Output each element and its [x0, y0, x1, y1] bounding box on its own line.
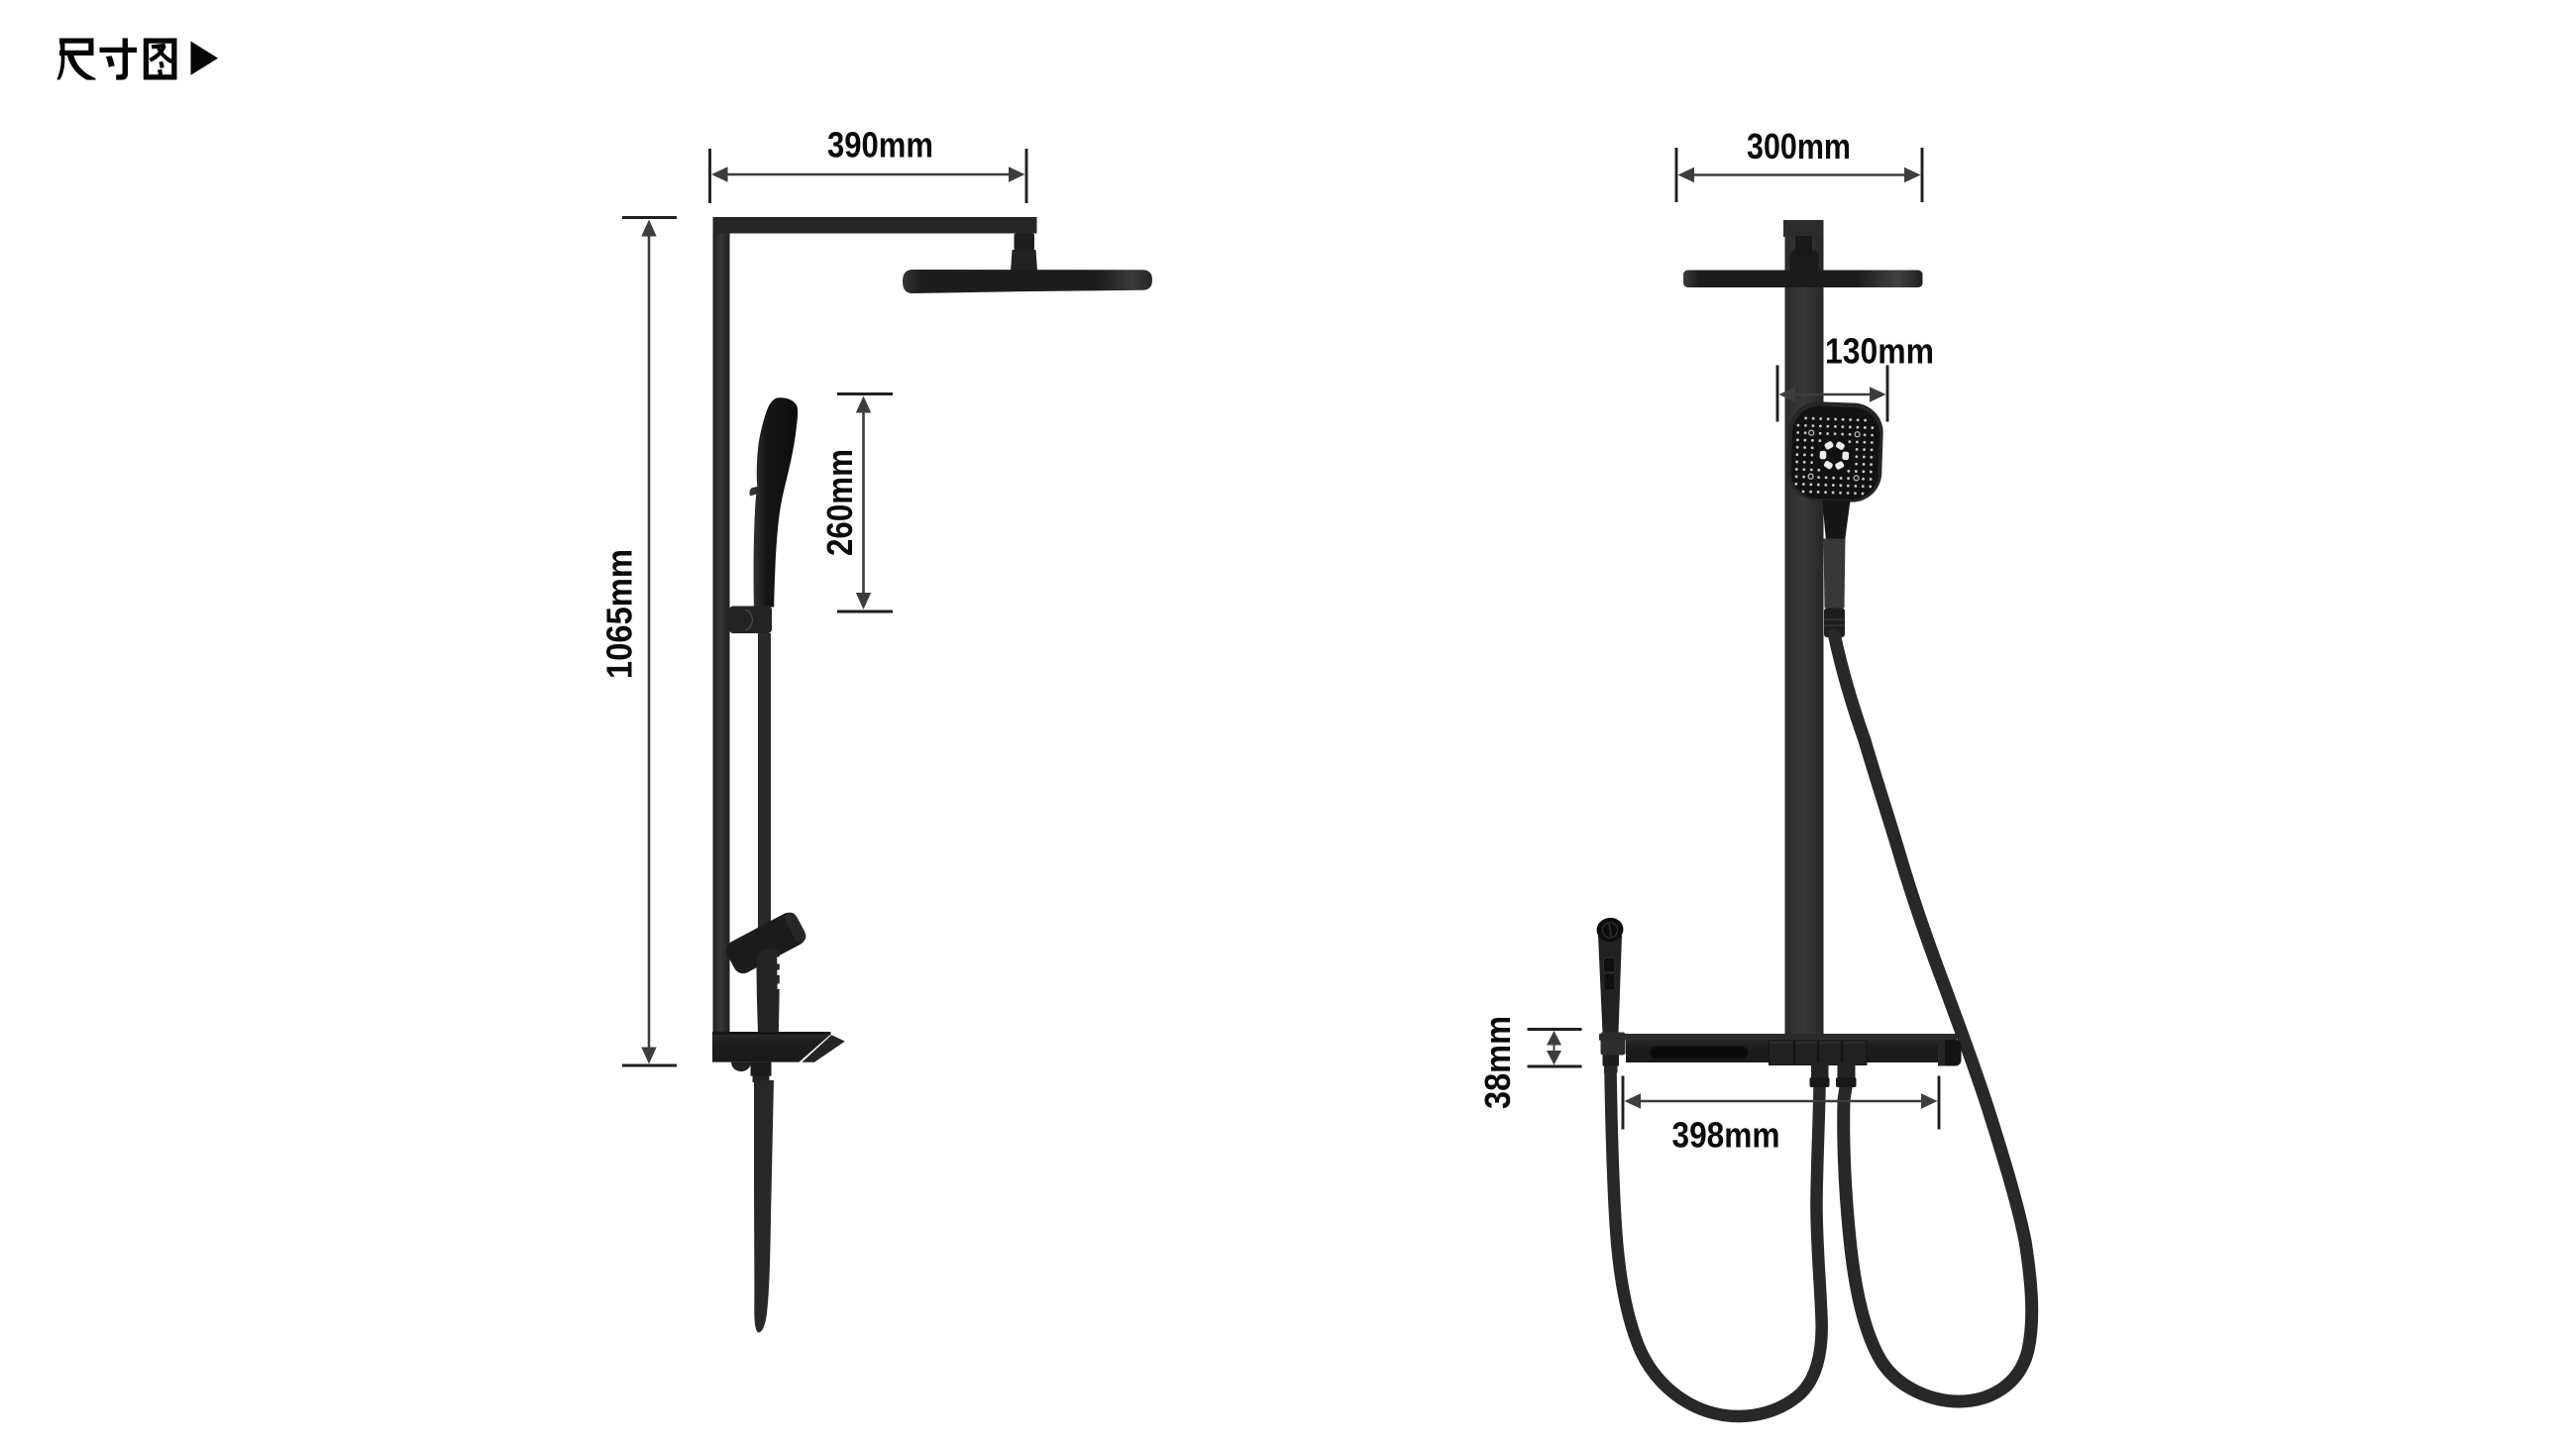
svg-text:1065mm: 1065mm: [599, 549, 640, 679]
svg-text:300mm: 300mm: [1747, 126, 1851, 167]
svg-text:38mm: 38mm: [1477, 1016, 1518, 1109]
svg-text:398mm: 398mm: [1672, 1115, 1780, 1156]
svg-text:260mm: 260mm: [819, 449, 860, 556]
svg-text:130mm: 130mm: [1825, 331, 1934, 372]
svg-text:390mm: 390mm: [827, 125, 933, 166]
